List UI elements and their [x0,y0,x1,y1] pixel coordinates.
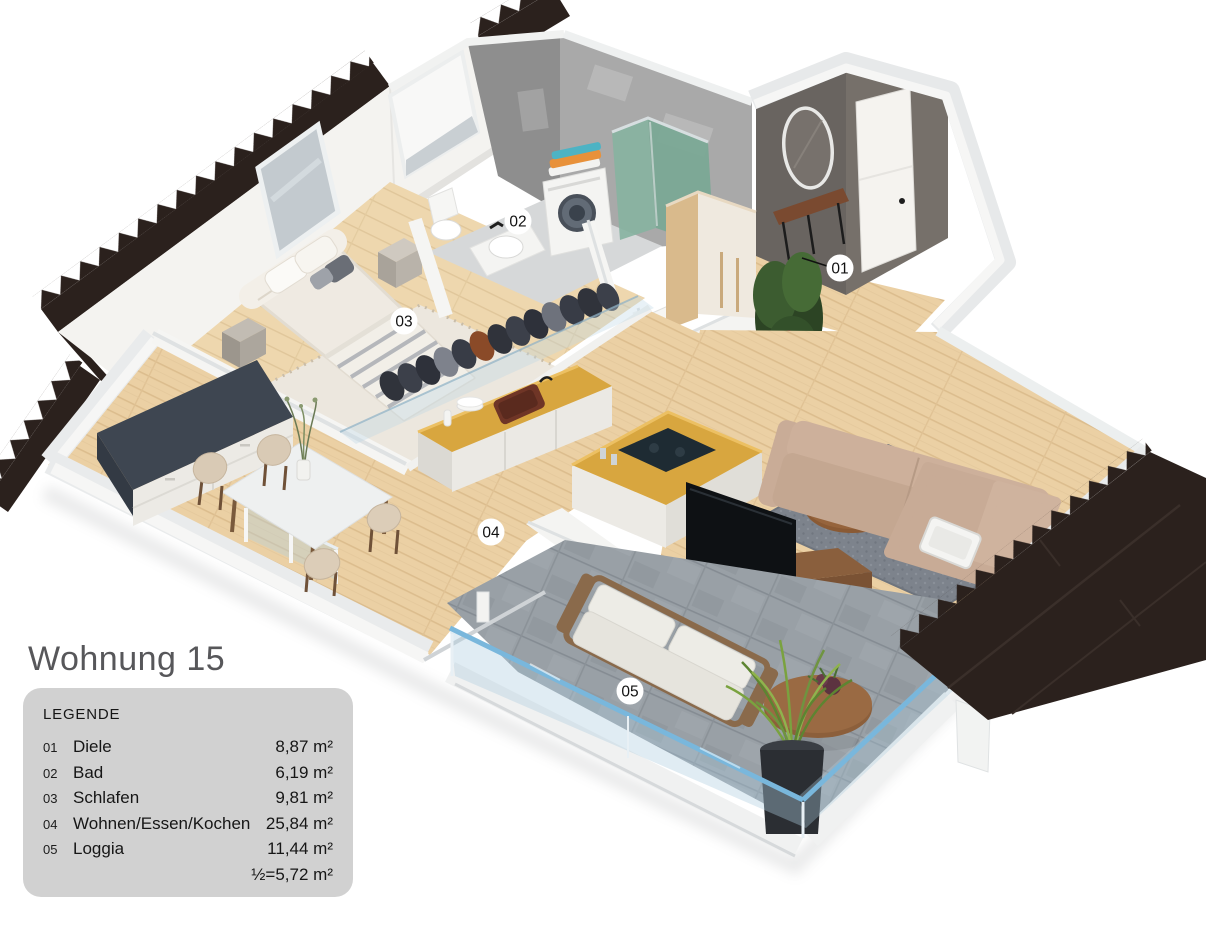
legend-half-note: ½=5,72 m² [43,865,333,891]
legend-area: 6,19 m² [275,763,333,783]
hall-wardrobe [666,192,756,330]
legend-half-row: ½=5,72 m² [43,865,333,891]
toilet [428,188,461,240]
legend-name: Wohnen/Essen/Kochen [73,814,266,834]
legend-num: 04 [43,817,73,832]
legend-heading: LEGENDE [43,706,333,723]
legend-row-schlafen: 03 Schlafen 9,81 m² [43,788,333,814]
room-label-04: 04 [478,519,505,546]
legend-num: 02 [43,766,73,781]
floorplan-canvas: 01 02 03 04 05 Wohnung 15 LEGENDE 01 Die… [0,0,1206,948]
legend-num: 05 [43,842,73,857]
room-label-03-text: 03 [395,314,412,331]
legend-panel: LEGENDE 01 Diele 8,87 m² 02 Bad 6,19 m² … [23,688,353,897]
legend-row-diele: 01 Diele 8,87 m² [43,737,333,763]
legend-area: 25,84 m² [266,814,333,834]
legend-num: 03 [43,791,73,806]
apartment-title: Wohnung 15 [28,640,225,679]
room-label-01: 01 [827,255,854,282]
room-label-02-text: 02 [509,214,526,231]
legend-row-loggia: 05 Loggia 11,44 m² [43,839,333,865]
room-label-03: 03 [391,308,418,335]
room-label-01-text: 01 [831,261,848,278]
legend-area: 11,44 m² [267,839,333,859]
legend-row-bad: 02 Bad 6,19 m² [43,763,333,789]
legend-num: 01 [43,740,73,755]
room-label-02: 02 [505,208,532,235]
legend-area: 8,87 m² [275,737,333,757]
room-label-05: 05 [617,678,644,705]
entry-door [856,88,916,272]
room-label-04-text: 04 [482,525,500,542]
legend-name: Loggia [73,839,267,859]
legend-name: Diele [73,737,275,757]
legend-area: 9,81 m² [275,788,333,808]
legend-name: Schlafen [73,788,275,808]
legend-row-wohnen: 04 Wohnen/Essen/Kochen 25,84 m² [43,814,333,840]
legend-name: Bad [73,763,275,783]
room-label-05-text: 05 [621,684,638,701]
